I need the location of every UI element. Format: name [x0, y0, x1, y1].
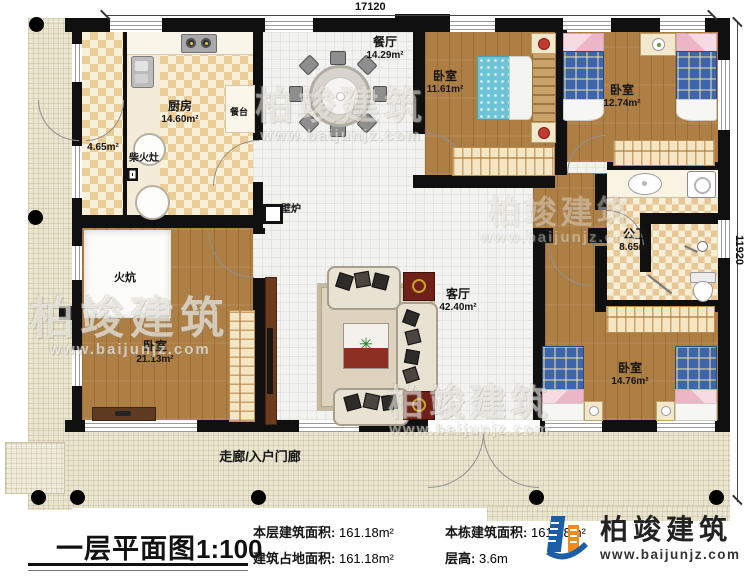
nightstand	[656, 401, 675, 421]
bathroom-area: 8.65m²	[607, 242, 663, 253]
nightstand	[531, 122, 556, 143]
bedroom-ne-label: 卧室	[592, 84, 652, 97]
shower-head-icon	[697, 241, 708, 252]
window-right-2	[718, 220, 730, 258]
bed-ne-right-mattress	[676, 51, 717, 103]
window-left-2	[72, 146, 82, 198]
dimension-right-value: 11920	[733, 217, 745, 283]
side-table-bottom	[403, 391, 435, 420]
window-top-1	[110, 18, 162, 32]
entrance-opening	[428, 420, 540, 432]
column	[28, 210, 43, 225]
dining-chair	[373, 86, 387, 102]
wood-stove-label: 柴火灶	[121, 153, 167, 164]
wardrobe-ne	[613, 140, 715, 166]
nightstand	[584, 401, 603, 421]
window-right-1	[718, 60, 730, 130]
wall-kitchen-bottom	[82, 215, 253, 228]
sofa-top	[327, 266, 401, 310]
kitchen-area: 14.60m²	[150, 114, 210, 125]
window-bottom-3	[545, 420, 602, 432]
desk	[92, 407, 156, 421]
window-left-3	[72, 246, 82, 280]
bedroom-ne-area: 12.74m²	[592, 98, 652, 109]
window-bottom-1	[85, 420, 197, 432]
wardrobe-nw	[452, 147, 555, 176]
living-label: 客厅	[428, 288, 488, 301]
column	[251, 490, 266, 505]
brand-logo: 柏竣建筑 www.baijunjz.com	[538, 510, 741, 568]
window-bottom-4	[657, 420, 715, 432]
bedroom-sw-label: 卧室	[125, 340, 185, 353]
window-top-2	[265, 18, 313, 32]
plant-icon: ✳	[344, 336, 388, 353]
tv	[267, 328, 273, 394]
fireplace-label: 壁炉	[281, 204, 317, 215]
window-left-1	[72, 44, 82, 82]
bed-nw-headboard	[532, 52, 556, 124]
coffee-table: ✳	[343, 323, 389, 369]
window-top-4	[563, 18, 611, 32]
dining-table	[309, 65, 371, 127]
nightstand	[640, 33, 676, 56]
dining-chair	[330, 51, 346, 65]
bedroom-se-area: 14.76m²	[600, 376, 660, 387]
dimension-top-value: 17120	[352, 1, 389, 13]
wardrobe-se	[606, 306, 715, 333]
sofa-bottom	[333, 388, 409, 426]
kitchen-sink	[131, 56, 154, 88]
burner-icon	[186, 38, 196, 48]
window-top-5	[660, 18, 705, 32]
porch-step-block	[5, 442, 65, 494]
wall-bathroom-stub-h	[640, 213, 718, 224]
brand-name: 柏竣建筑	[600, 516, 741, 544]
stat-floor-area: 本层建筑面积: 161.18m²	[253, 522, 431, 541]
wall-bedroom-se-top-a	[545, 228, 553, 243]
wall-fireplace-stub	[253, 182, 263, 228]
column	[709, 490, 724, 505]
bedroom-nw-label: 卧室	[415, 70, 475, 83]
bedroom-se-label: 卧室	[600, 362, 660, 375]
brand-logo-icon	[538, 510, 594, 568]
burner-icon	[201, 38, 211, 48]
title-underline-thick	[28, 563, 248, 566]
wall-bedroom-ne-bottom-a	[555, 162, 567, 174]
bed-se-left-mattress	[542, 346, 584, 393]
porch-label: 走廊/入户门廊	[180, 450, 340, 464]
kang-label: 火炕	[95, 272, 155, 284]
dimension-line-top	[105, 15, 712, 16]
washing-machine	[687, 171, 716, 198]
wall-bedroom-nw-bottom	[413, 175, 555, 188]
dining-label: 餐厅	[360, 36, 410, 49]
column	[29, 17, 44, 32]
bathroom-label: 公卫	[607, 228, 663, 241]
title-underline-thin	[28, 570, 248, 571]
stat-footprint-area: 建筑占地面积: 161.18m²	[253, 548, 431, 567]
brand-site: www.baijunjz.com	[600, 547, 741, 562]
living-area: 42.40m²	[428, 302, 488, 313]
serving-counter-label: 餐台	[224, 108, 254, 118]
fireplace	[263, 204, 283, 224]
bed-se-right-mattress	[675, 346, 717, 393]
porch-bottom-band	[28, 430, 730, 508]
window-top-3	[450, 18, 495, 32]
bed-ne-right-foot	[676, 99, 717, 121]
wall-bedroom-sw-right-a	[253, 228, 265, 234]
dining-area: 14.29m²	[360, 50, 410, 61]
flue-box-kitchen	[127, 168, 138, 181]
bathroom-sink	[628, 173, 662, 195]
wall-bathroom-left-a	[595, 174, 607, 210]
stove	[181, 34, 217, 53]
wardrobe-sw	[229, 310, 255, 422]
wall-bedroom-se-top-b	[588, 228, 607, 243]
wood-stove-pot-2	[135, 185, 170, 220]
bedroom-sw-area: 21.13m²	[125, 354, 185, 365]
column	[529, 490, 544, 505]
kitchen-label: 厨房	[150, 100, 210, 113]
bed-se-right-pillow	[675, 403, 717, 421]
plan-title: 一层平面图1:100	[56, 527, 263, 566]
window-left-4	[72, 350, 82, 386]
flue-box	[59, 306, 72, 320]
column	[70, 490, 85, 505]
column	[31, 490, 46, 505]
bedroom-nw-area: 11.61m²	[415, 84, 475, 95]
dining-chair	[289, 86, 303, 102]
pantry-area: 4.65m²	[78, 142, 128, 153]
sofa-right	[396, 302, 438, 394]
bed-se-left-pillow	[542, 403, 584, 421]
wall-bathroom-left-b	[595, 246, 607, 302]
nightstand	[531, 33, 556, 54]
plan-title-text: 一层平面图	[56, 534, 196, 564]
building-stats: 本层建筑面积: 161.18m² 本栋建筑面积: 161.18m² 建筑占地面积…	[253, 522, 586, 567]
floor-plan-canvas: ✳ 厨房 14.60m² 4.65m² 餐台 柴火灶 壁炉 餐厅 14.29m²…	[0, 0, 750, 580]
